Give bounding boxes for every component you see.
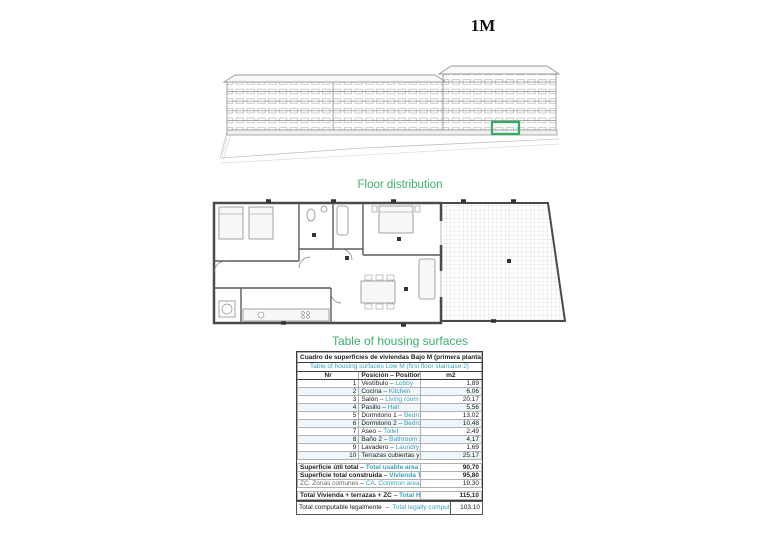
row-area: 1,89 bbox=[420, 380, 481, 388]
row-area: 13,02 bbox=[420, 412, 481, 420]
legally-computable-box: Total computable legalmente – Total lega… bbox=[296, 501, 483, 515]
table-row: 7Aseo – Toilet2,49 bbox=[298, 428, 482, 436]
column-header-row: Nr Posición – Position m2 bbox=[298, 372, 482, 380]
housing-surfaces-table: Cuadro de superficies de viviendas Bajo … bbox=[296, 351, 483, 501]
column-m2: m2 bbox=[420, 372, 481, 380]
total-row: Superficie útil total – Total usable are… bbox=[298, 464, 482, 472]
table-row: 1Vestíbulo – Lobby1,89 bbox=[298, 380, 482, 388]
row-area: 1,69 bbox=[420, 444, 481, 452]
row-number: 6 bbox=[298, 420, 359, 428]
table-row: 8Baño 2 – Bathroom 24,17 bbox=[298, 436, 482, 444]
row-position: Aseo – Toilet bbox=[359, 428, 420, 436]
row-number: 1 bbox=[298, 380, 359, 388]
table-row: 6Dormitorio 2 – Bedroom 210,48 bbox=[298, 420, 482, 428]
unit-title: 1M bbox=[448, 16, 518, 36]
total-row: Superficie total construida – Vivienda T… bbox=[298, 472, 482, 480]
row-number: 2 bbox=[298, 388, 359, 396]
table-row: 9Lavadero – Laundry1,69 bbox=[298, 444, 482, 452]
building-elevation bbox=[213, 58, 567, 170]
floor-plan-drawing bbox=[211, 193, 570, 334]
row-position: Pasillo – Hall bbox=[359, 404, 420, 412]
row-position: Lavadero – Laundry bbox=[359, 444, 420, 452]
column-nr: Nr bbox=[298, 372, 359, 380]
total-area: 95,80 bbox=[420, 472, 481, 480]
row-number: 7 bbox=[298, 428, 359, 436]
row-number: 4 bbox=[298, 404, 359, 412]
table-row: 4Pasillo – Hall5,56 bbox=[298, 404, 482, 412]
table-title-en: Table of housing surfaces Low M (first f… bbox=[298, 363, 482, 372]
total-area: 19,30 bbox=[420, 480, 481, 488]
floor-plan bbox=[211, 193, 570, 334]
row-position: Dormitorio 1 – Bedroom 1 bbox=[359, 412, 420, 420]
total-area: 90,70 bbox=[420, 464, 481, 472]
row-position: Superficie total construida – Vivienda T… bbox=[298, 472, 421, 480]
row-number: 8 bbox=[298, 436, 359, 444]
table-row: 10Terrazas cubiertas y descubiertas – Co… bbox=[298, 452, 482, 460]
building-elevation-drawing bbox=[213, 58, 567, 170]
row-number: 9 bbox=[298, 444, 359, 452]
surface-table-body: 1Vestíbulo – Lobby1,892Cocina – Kitchen6… bbox=[298, 380, 482, 500]
row-number: 3 bbox=[298, 396, 359, 404]
total-row: Total Vivienda + terrazas + ZC – Total H… bbox=[298, 492, 482, 500]
row-area: 6,06 bbox=[420, 388, 481, 396]
table-title-es: Cuadro de superficies de viviendas Bajo … bbox=[298, 353, 482, 363]
row-position: Cocina – Kitchen bbox=[359, 388, 420, 396]
row-area: 25,17 bbox=[420, 452, 481, 460]
floor-distribution-label: Floor distribution bbox=[205, 179, 595, 191]
row-area: 20,17 bbox=[420, 396, 481, 404]
row-area: 4,17 bbox=[420, 436, 481, 444]
total-area: 115,10 bbox=[420, 492, 481, 500]
row-position: Total Vivienda + terrazas + ZC – Total H… bbox=[298, 492, 421, 500]
row-area: 10,48 bbox=[420, 420, 481, 428]
terrace-area bbox=[441, 203, 565, 321]
legally-computable-label: Total computable legalmente – Total lega… bbox=[297, 502, 450, 514]
table-row: 3Salón – Living room20,17 bbox=[298, 396, 482, 404]
row-position: Baño 2 – Bathroom 2 bbox=[359, 436, 420, 444]
row-position: ZC. Zonas comunes – CA. Common areas bbox=[298, 480, 421, 488]
table-row: 5Dormitorio 1 – Bedroom 113,02 bbox=[298, 412, 482, 420]
row-position: Salón – Living room bbox=[359, 396, 420, 404]
row-number: 5 bbox=[298, 412, 359, 420]
row-area: 2,49 bbox=[420, 428, 481, 436]
row-position: Vestíbulo – Lobby bbox=[359, 380, 420, 388]
row-position: Terrazas cubiertas y descubiertas – Cove… bbox=[359, 452, 420, 460]
document-page: 1M bbox=[0, 0, 770, 535]
legally-computable-value: 103,10 bbox=[450, 502, 482, 514]
table-row: 2Cocina – Kitchen6,06 bbox=[298, 388, 482, 396]
row-number: 10 bbox=[298, 452, 359, 460]
row-position: Dormitorio 2 – Bedroom 2 bbox=[359, 420, 420, 428]
row-position: Superficie útil total – Total usable are… bbox=[298, 464, 421, 472]
row-area: 5,56 bbox=[420, 404, 481, 412]
column-position: Posición – Position bbox=[359, 372, 420, 380]
total-row: ZC. Zonas comunes – CA. Common areas19,3… bbox=[298, 480, 482, 488]
table-heading: Table of housing surfaces bbox=[205, 334, 595, 348]
